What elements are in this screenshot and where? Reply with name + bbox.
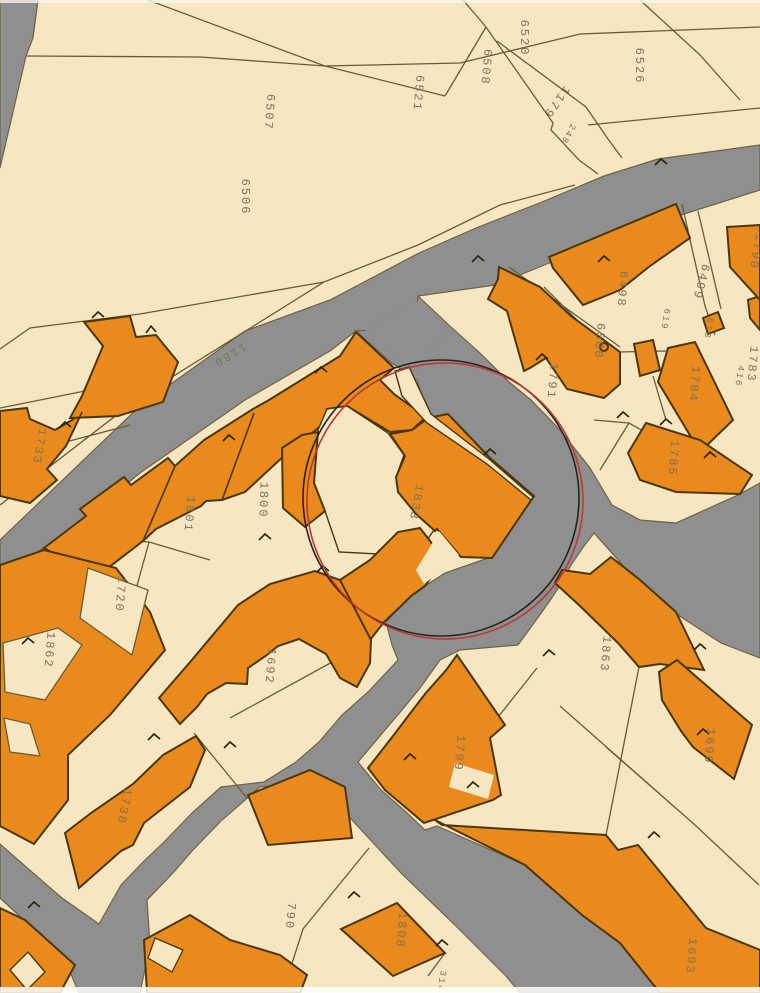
svg-text:6506: 6506	[238, 179, 252, 216]
svg-text:6526: 6526	[632, 48, 646, 85]
svg-text:1800: 1800	[255, 481, 270, 518]
svg-text:790: 790	[282, 902, 298, 931]
svg-text:6520: 6520	[517, 20, 531, 57]
